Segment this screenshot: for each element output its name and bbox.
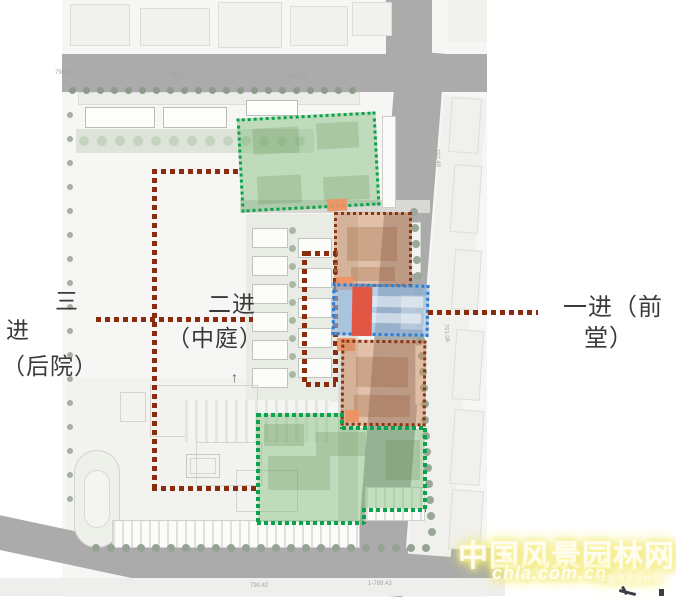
road-elevation-mark: 791.06 — [443, 324, 450, 343]
tree-icon — [362, 544, 370, 552]
tree-icon — [167, 87, 174, 94]
north-gate-marker — [327, 198, 348, 211]
tree-icon — [335, 87, 342, 94]
south-green-edge — [423, 428, 427, 510]
tree-icon — [67, 472, 73, 478]
map-decoration — [452, 329, 485, 401]
north-hall-block-region — [334, 212, 412, 287]
tree-icon — [111, 87, 118, 94]
tree-icon — [152, 544, 160, 552]
map-decoration — [252, 284, 288, 304]
tree-icon — [125, 87, 132, 94]
tree-icon — [182, 544, 190, 552]
road-elevation-mark: 790.42 — [250, 583, 268, 589]
tree-icon — [137, 544, 145, 552]
second-courtyard-label-line1: 二进 — [208, 293, 256, 316]
tree-icon — [427, 512, 435, 520]
tree-icon — [153, 87, 160, 94]
road-elevation-mark: 794.38 — [55, 70, 73, 76]
map-decoration — [163, 107, 227, 128]
tree-icon — [347, 544, 355, 552]
map-decoration — [78, 92, 360, 105]
second-courtyard-outline-top — [306, 251, 336, 256]
map-decoration — [382, 116, 396, 208]
second-courtyard-outline-bottom — [306, 382, 336, 387]
tree-icon — [332, 544, 340, 552]
third-courtyard-outline-bottom — [152, 486, 259, 491]
tree-icon — [187, 136, 197, 146]
tree-icon — [257, 544, 265, 552]
third-courtyard-outline-left — [152, 169, 157, 491]
map-decoration — [140, 8, 210, 46]
tree-icon — [321, 87, 328, 94]
tree-icon — [289, 245, 296, 252]
tree-icon — [289, 227, 296, 234]
road-elevation-mark: 792.14 — [288, 74, 306, 80]
third-courtyard-label-line1: 三 — [55, 290, 79, 313]
map-decoration — [352, 2, 392, 36]
tree-icon — [349, 87, 356, 94]
tree-icon — [115, 136, 125, 146]
first-courtyard-label-line2: 堂） — [584, 327, 634, 351]
tree-icon — [414, 272, 422, 280]
tree-icon — [133, 136, 143, 146]
tree-icon — [392, 544, 400, 552]
cropped-glyph-fragment — [659, 589, 664, 596]
tree-icon — [411, 224, 419, 232]
watermark-site-name-small: 中国风景园林网 — [598, 572, 661, 585]
tree-icon — [293, 87, 300, 94]
map-decoration — [218, 2, 282, 48]
tree-icon — [67, 136, 73, 142]
map-decoration — [85, 107, 155, 128]
south-green-edge — [342, 426, 426, 430]
tree-icon — [289, 353, 296, 360]
tree-icon — [289, 263, 296, 270]
tree-icon — [287, 544, 295, 552]
third-courtyard-leader-line — [96, 317, 253, 322]
tree-icon — [412, 240, 420, 248]
tree-icon — [289, 299, 296, 306]
tree-icon — [413, 256, 421, 264]
tree-icon — [67, 400, 73, 406]
tree-icon — [227, 544, 235, 552]
tree-icon — [67, 280, 73, 286]
map-decoration — [450, 164, 483, 234]
tree-icon — [69, 87, 76, 94]
map-decoration — [252, 228, 288, 248]
tree-icon — [223, 136, 233, 146]
tree-icon — [242, 544, 250, 552]
south-green-edge — [256, 413, 260, 523]
map-decoration — [190, 458, 216, 474]
tree-icon — [223, 87, 230, 94]
tree-icon — [212, 544, 220, 552]
south-green-edge — [257, 413, 342, 417]
tree-icon — [407, 544, 415, 552]
tree-icon — [167, 544, 175, 552]
tree-icon — [251, 87, 258, 94]
tree-icon — [272, 544, 280, 552]
tree-icon — [107, 544, 115, 552]
watermark-site-url: chla.com.cn — [492, 563, 607, 584]
tree-icon — [122, 544, 130, 552]
tree-icon — [289, 335, 296, 342]
tree-icon — [67, 208, 73, 214]
map-decoration — [451, 249, 482, 311]
second-courtyard-label-line2: （中庭） — [167, 327, 263, 350]
tree-icon — [302, 544, 310, 552]
first-courtyard-leader-line — [428, 310, 538, 315]
south-green-edge — [257, 521, 364, 525]
tree-icon — [265, 87, 272, 94]
south-green-edge — [362, 508, 426, 512]
tree-icon — [197, 544, 205, 552]
tree-icon — [97, 87, 104, 94]
road-elevation-mark: 791.11 — [170, 73, 188, 79]
tree-icon — [279, 87, 286, 94]
road-elevation-mark: 1-789.43 — [368, 581, 392, 587]
tree-icon — [67, 184, 73, 190]
third-courtyard-label-line2: 进 — [6, 319, 30, 342]
site-plan-canvas: 三 进 （后院） 二进 （中庭） 一进（前 堂） ↑ 794.38 791.11… — [0, 0, 676, 600]
map-decoration — [120, 392, 146, 422]
north-green-court-region — [237, 111, 381, 212]
tree-icon — [195, 87, 202, 94]
map-decoration — [246, 100, 298, 116]
tree-icon — [428, 528, 436, 536]
map-decoration — [290, 6, 348, 46]
tree-icon — [139, 87, 146, 94]
tree-icon — [83, 87, 90, 94]
tree-icon — [289, 317, 296, 324]
tree-icon — [209, 87, 216, 94]
tree-icon — [67, 448, 73, 454]
tree-icon — [151, 136, 161, 146]
entry-axis-marker — [352, 287, 373, 336]
map-decoration — [448, 97, 482, 154]
tree-icon — [92, 544, 100, 552]
tree-icon — [307, 87, 314, 94]
tree-icon — [317, 544, 325, 552]
tree-icon — [422, 544, 430, 552]
third-courtyard-label-line3: （后院） — [2, 355, 98, 378]
tree-icon — [205, 136, 215, 146]
tree-icon — [181, 87, 188, 94]
tree-icon — [97, 136, 107, 146]
tree-icon — [67, 232, 73, 238]
third-courtyard-outline-top — [152, 169, 242, 174]
tree-icon — [67, 424, 73, 430]
tree-icon — [67, 112, 73, 118]
map-decoration — [449, 409, 484, 486]
front-hall-plaza-region — [332, 283, 430, 337]
first-courtyard-label-line1: 一进（前 — [563, 296, 663, 320]
map-decoration — [70, 4, 130, 46]
tree-icon — [377, 544, 385, 552]
tree-icon — [79, 136, 89, 146]
second-courtyard-outline-left — [302, 251, 307, 386]
tree-icon — [67, 328, 73, 334]
tree-icon — [67, 496, 73, 502]
tree-icon — [67, 256, 73, 262]
tree-icon — [289, 281, 296, 288]
tree-icon — [67, 160, 73, 166]
tree-icon — [237, 87, 244, 94]
tree-icon — [289, 371, 296, 378]
road-elevation-mark: 792.48 — [434, 149, 441, 168]
north-arrow-icon: ↑ — [231, 369, 238, 385]
map-decoration — [84, 470, 110, 528]
tree-icon — [426, 496, 434, 504]
map-decoration — [252, 256, 288, 276]
tree-icon — [169, 136, 179, 146]
south-gate-marker — [345, 410, 359, 422]
